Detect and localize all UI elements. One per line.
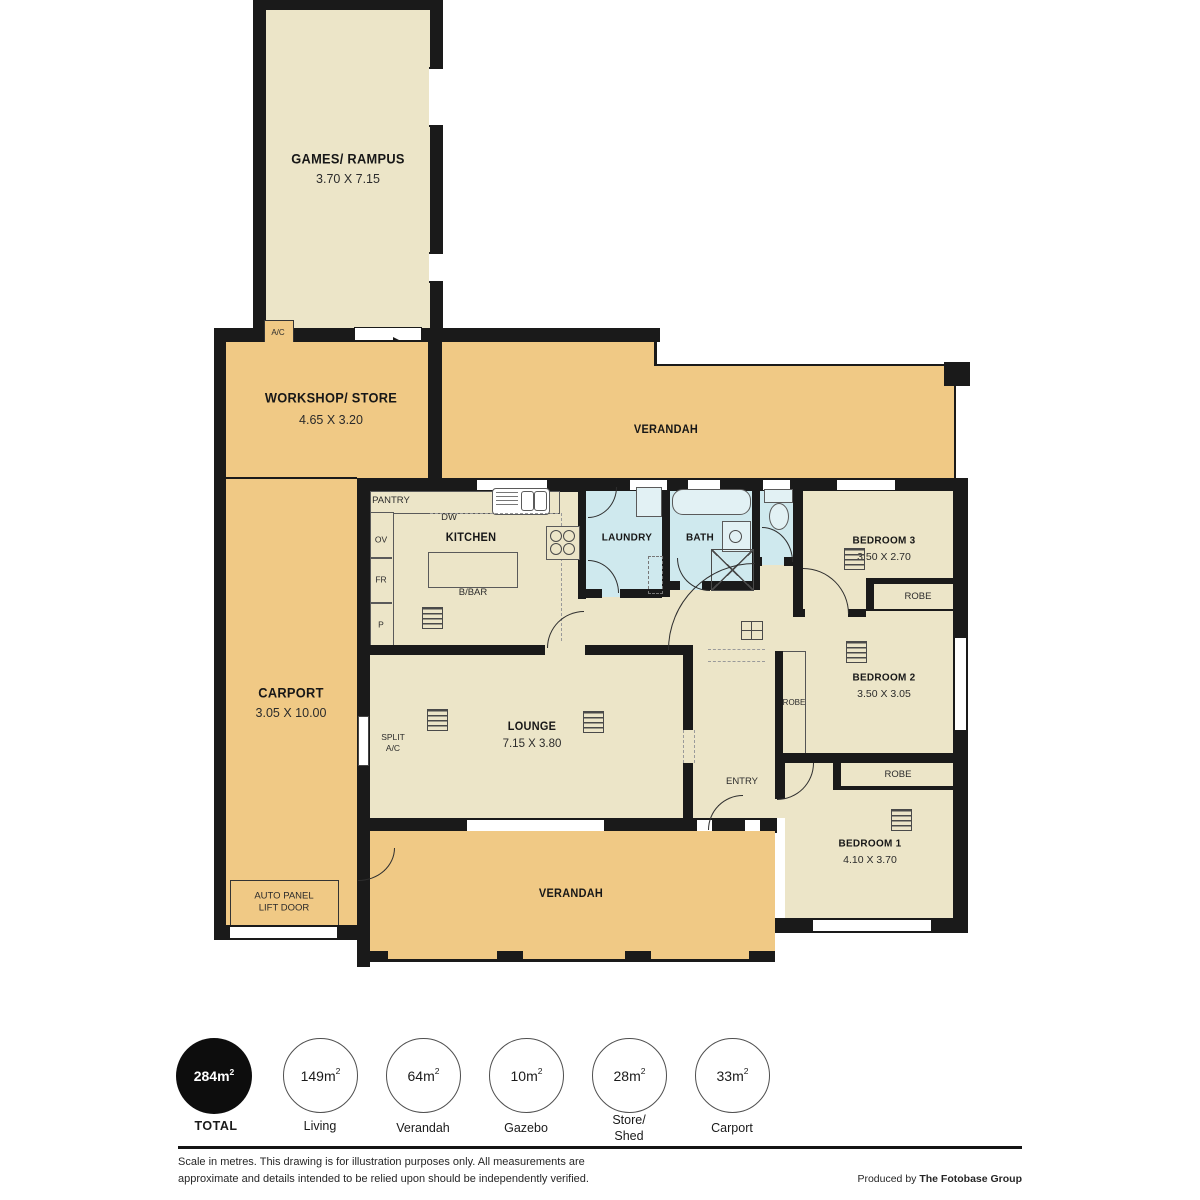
workshop-dims: 4.65 X 3.20 bbox=[299, 413, 363, 427]
area-badge-label: Verandah bbox=[368, 1120, 478, 1136]
bedroom3-dims: 3.50 X 2.70 bbox=[857, 551, 911, 563]
counter-line bbox=[430, 513, 558, 514]
wall bbox=[683, 648, 693, 730]
window bbox=[955, 636, 966, 732]
wall bbox=[848, 609, 866, 617]
laundry-trough bbox=[636, 487, 662, 517]
heater-vent bbox=[844, 548, 865, 570]
garage-door-opening bbox=[230, 927, 337, 938]
area-badge-living: 149m2 bbox=[283, 1038, 358, 1113]
verandah-top-floor bbox=[654, 364, 956, 480]
games-room-floor bbox=[266, 10, 430, 328]
verandah-post bbox=[360, 951, 388, 962]
heater-vent bbox=[891, 809, 912, 831]
sink-bowl bbox=[521, 491, 534, 511]
breakfast-bar bbox=[428, 552, 518, 588]
lounge-dims: 7.15 X 3.80 bbox=[503, 738, 562, 750]
disclaimer-line2: approximate and details intended to be r… bbox=[178, 1173, 589, 1185]
area-sup: 2 bbox=[336, 1066, 341, 1076]
verandah-top-label: VERANDAH bbox=[634, 423, 698, 437]
workshop-floor bbox=[226, 342, 428, 478]
split-ac-label: SPLIT A/C bbox=[381, 732, 405, 754]
cabinet-divider bbox=[370, 557, 392, 559]
wall bbox=[793, 491, 803, 613]
produced-by: Produced by The Fotobase Group bbox=[857, 1173, 1022, 1185]
produced-by-prefix: Produced by bbox=[857, 1173, 919, 1185]
washer-space bbox=[648, 556, 663, 594]
breakfast-bar-label: B/BAR bbox=[459, 587, 488, 599]
bathtub bbox=[672, 489, 751, 515]
floor-plan-page: GAMES/ RAMPUS 3.70 X 7.15 A/C WORKSHOP/ … bbox=[0, 0, 1200, 1200]
area-value: 33m bbox=[717, 1068, 744, 1084]
laundry-label: LAUNDRY bbox=[602, 531, 652, 544]
area-sup: 2 bbox=[435, 1066, 440, 1076]
area-sup: 2 bbox=[538, 1066, 543, 1076]
door-opening bbox=[354, 327, 422, 341]
area-badge-verandah: 64m2 bbox=[386, 1038, 461, 1113]
area-badge-carport: 33m2 bbox=[695, 1038, 770, 1113]
heater-vent bbox=[422, 607, 443, 629]
area-badge-label: Living bbox=[265, 1118, 375, 1134]
area-badge-gazebo: 10m2 bbox=[489, 1038, 564, 1113]
bedroom3-label: BEDROOM 3 bbox=[853, 534, 916, 547]
auto-panel-label: AUTO PANEL LIFT DOOR bbox=[254, 891, 313, 916]
window bbox=[429, 252, 443, 283]
carport-label: CARPORT bbox=[258, 686, 323, 703]
window bbox=[813, 920, 931, 931]
area-badge-label: TOTAL bbox=[161, 1118, 271, 1134]
basin-bowl bbox=[729, 530, 742, 543]
robe-label: ROBE bbox=[783, 698, 806, 708]
kitchen-label: KITCHEN bbox=[446, 531, 497, 545]
window bbox=[465, 820, 606, 831]
area-sup: 2 bbox=[230, 1067, 235, 1077]
footer-divider bbox=[178, 1146, 1022, 1149]
heater-vent bbox=[427, 709, 448, 731]
ac-unit-label: A/C bbox=[271, 328, 284, 338]
entry-label: ENTRY bbox=[726, 776, 758, 788]
bedroom2-label: BEDROOM 2 bbox=[853, 671, 916, 684]
bedroom1-label: BEDROOM 1 bbox=[839, 837, 902, 850]
lounge-label: LOUNGE bbox=[508, 720, 556, 734]
producer-brand: The Fotobase Group bbox=[919, 1173, 1022, 1185]
bedroom2-floor bbox=[806, 617, 953, 753]
verandah-bottom-label: VERANDAH bbox=[539, 887, 603, 901]
area-value: 64m bbox=[408, 1068, 435, 1084]
robe-label: ROBE bbox=[905, 591, 932, 603]
bedroom2-dims: 3.50 X 3.05 bbox=[857, 688, 911, 700]
burner-icon bbox=[563, 530, 575, 542]
workshop-label: WORKSHOP/ STORE bbox=[265, 391, 397, 408]
split-ac-unit bbox=[358, 716, 369, 766]
wall bbox=[357, 478, 370, 830]
verandah-post bbox=[749, 951, 775, 962]
pantry-cupboard-label: P bbox=[378, 619, 384, 630]
robe-label: ROBE bbox=[885, 769, 912, 781]
opening-marker bbox=[683, 730, 695, 763]
wall bbox=[662, 581, 680, 590]
area-value: 149m bbox=[301, 1068, 336, 1084]
verandah-post bbox=[944, 362, 970, 386]
wall bbox=[370, 645, 545, 655]
area-badge-total: 284m2 bbox=[176, 1038, 252, 1114]
wall bbox=[866, 609, 953, 611]
verandah-edge bbox=[360, 959, 775, 962]
sink-drainer bbox=[496, 492, 518, 508]
area-badge-label: Gazebo bbox=[471, 1120, 581, 1136]
oven-label: OV bbox=[375, 534, 387, 545]
burner-icon bbox=[550, 543, 562, 555]
wall bbox=[775, 753, 968, 763]
area-value: 28m bbox=[614, 1068, 641, 1084]
window bbox=[429, 67, 443, 127]
wall bbox=[428, 342, 442, 478]
area-badge-store-shed: 28m2 bbox=[592, 1038, 667, 1113]
games-room-label: GAMES/ RAMPUS bbox=[291, 152, 404, 169]
area-value: 10m bbox=[511, 1068, 538, 1084]
door-opening bbox=[745, 820, 760, 831]
area-badge-label: Carport bbox=[677, 1120, 787, 1136]
toilet-cistern bbox=[764, 489, 793, 503]
heater-vent bbox=[846, 641, 867, 663]
verandah-post bbox=[497, 951, 523, 962]
bedroom1-dims: 4.10 X 3.70 bbox=[843, 854, 897, 866]
window bbox=[837, 480, 895, 490]
carport-dims: 3.05 X 10.00 bbox=[256, 706, 327, 720]
pantry-label: PANTRY bbox=[372, 495, 410, 507]
area-sup: 2 bbox=[744, 1066, 749, 1076]
area-badge-label: Store/ Shed bbox=[574, 1112, 684, 1145]
area-sup: 2 bbox=[641, 1066, 646, 1076]
area-value: 284m bbox=[194, 1068, 230, 1084]
cabinet-divider bbox=[370, 602, 392, 604]
games-room-dims: 3.70 X 7.15 bbox=[316, 172, 380, 186]
verandah-post bbox=[625, 951, 651, 962]
wall bbox=[226, 477, 357, 479]
wall bbox=[214, 342, 226, 940]
burner-icon bbox=[550, 530, 562, 542]
fridge-label: FR bbox=[375, 574, 386, 585]
burner-icon bbox=[563, 543, 575, 555]
sink-bowl bbox=[534, 491, 547, 511]
opening-marker bbox=[708, 649, 765, 662]
toilet-bowl bbox=[769, 503, 789, 530]
disclaimer-line1: Scale in metres. This drawing is for ill… bbox=[178, 1156, 585, 1168]
verandah-top-floor bbox=[442, 342, 654, 478]
heater-vent bbox=[583, 711, 604, 733]
bath-label: BATH bbox=[686, 531, 714, 544]
